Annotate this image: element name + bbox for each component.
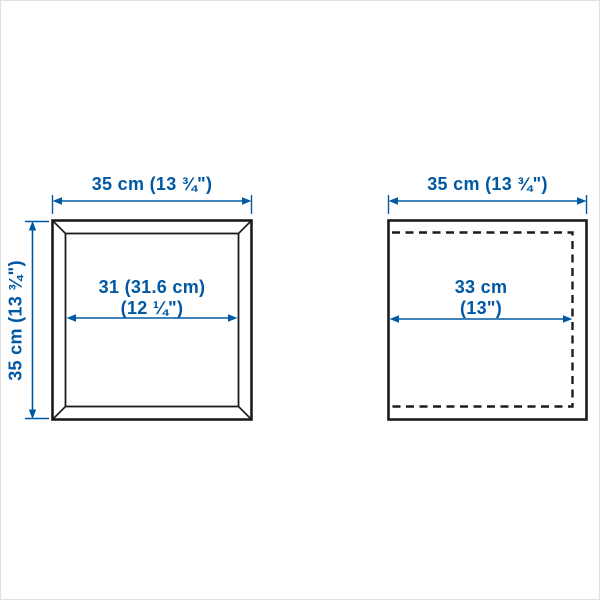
left-width-dimension [53,195,252,214]
left-inner-dimension-label: 31 (31.6 cm) (12 ¼") [52,277,252,319]
right-panel-figure [389,221,587,420]
left-side-dimension-label: 35 cm (13 ¾") [6,216,27,426]
left-width-arrowhead-right [242,197,252,204]
left-height-arrowhead-top [29,221,36,231]
right-width-dimension [389,195,587,214]
right-panel-outline [389,221,587,420]
left-height-dimension [25,221,49,419]
right-top-dimension-label: 35 cm (13 ¾") [388,174,587,195]
right-inner-dimension-line2: (13") [381,298,581,319]
left-outer-frame [53,221,252,420]
product-dimension-diagram: 35 cm (13 ¾") 35 cm (13 ¾") 31 (31.6 cm)… [0,0,600,600]
left-width-arrowhead-left [53,197,63,204]
right-width-arrowhead-left [389,197,399,204]
left-inner-dimension-line1: 31 (31.6 cm) [52,277,252,298]
right-width-arrowhead-right [577,197,587,204]
left-height-arrowhead-bottom [29,410,36,420]
right-inner-dimension-label: 33 cm (13") [381,277,581,319]
left-inner-dimension-line2: (12 ¼") [52,298,252,319]
right-inner-dimension-line1: 33 cm [381,277,581,298]
left-top-dimension-label: 35 cm (13 ¾") [52,174,252,195]
left-frame-figure [53,221,252,420]
